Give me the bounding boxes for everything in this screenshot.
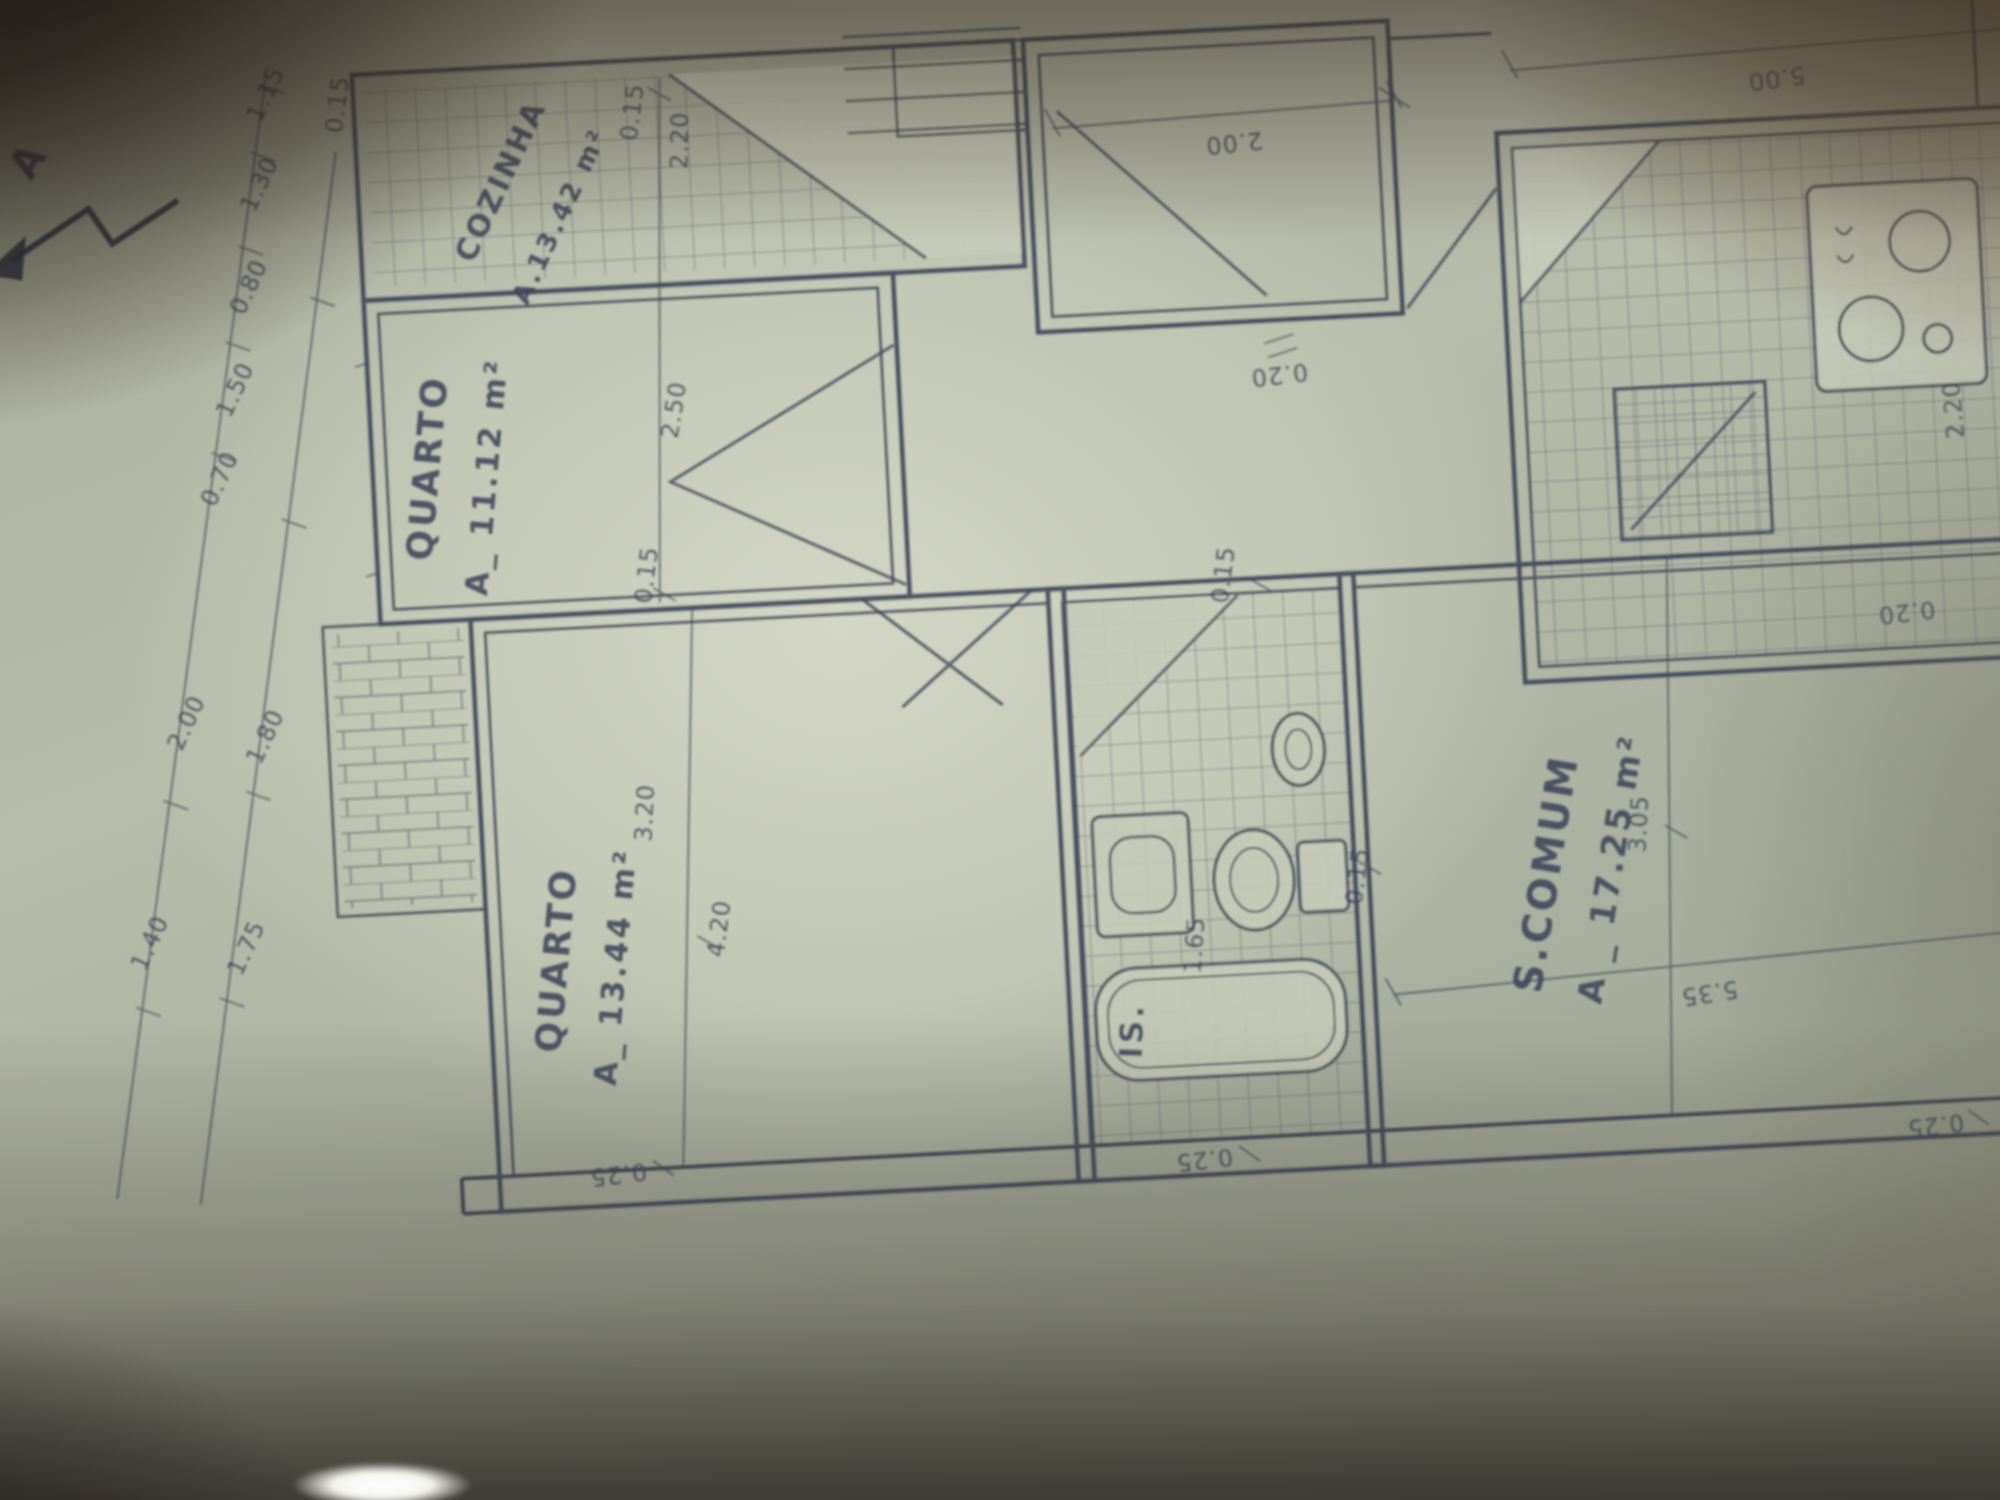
chain-b-175: 1.75 (221, 916, 271, 980)
sink-bowl (1109, 835, 1177, 914)
room-label-scomum: S.COMUM (1504, 751, 1587, 996)
dim-bottomwall-mid: 0.25 (1174, 1142, 1234, 1177)
dim-scomum-length: 5.35 (1679, 975, 1740, 1012)
dim-quarto1-width: 2.50 (656, 379, 693, 440)
dim-kitchen1: 2.20 (665, 111, 694, 169)
plan-rotated-group: A COZINHA A.13.42 m² QUARTO A_ 11.12 m² … (0, 0, 2000, 1241)
dim-quarto2-width: 3.20 (629, 783, 660, 842)
chain-a-130: 1.30 (234, 152, 284, 216)
room-label-quarto2: QUARTO (527, 865, 584, 1054)
room-label-quarto1: QUARTO (399, 373, 456, 562)
dim-scomum-width: 3.05 (1623, 794, 1654, 853)
stove (1807, 178, 1987, 392)
section-marker-label: A (0, 133, 57, 186)
room-area-quarto2: A_ 13.44 m² (587, 847, 644, 1087)
room-area-quarto1: A_ 11.12 m² (458, 357, 515, 597)
dim-kitchen2-width: 2.20 (1937, 380, 1970, 440)
dim-wall-topleft: 0.15 (320, 74, 355, 134)
dim-quarto2-length: 4.20 (702, 898, 737, 958)
light-reflection (292, 1462, 472, 1500)
section-arrowhead (0, 236, 28, 282)
chain-a-200: 2.00 (162, 691, 212, 755)
room-label-is: IS. (1112, 1002, 1152, 1059)
blueprint-photo: A COZINHA A.13.42 m² QUARTO A_ 11.12 m² … (0, 0, 2000, 1500)
floorplan-svg: A COZINHA A.13.42 m² QUARTO A_ 11.12 m² … (0, 0, 2000, 1500)
dim-bathtub: 1.65 (1179, 915, 1211, 974)
dim-bottomwall-right: 0.25 (1905, 1108, 1965, 1143)
chain-a-080: 0.80 (224, 255, 274, 319)
dim-bottomwall-left: 0.25 (588, 1157, 648, 1192)
chain-a-150: 1.50 (210, 358, 260, 422)
dim-wall-hall: 0.20 (1249, 357, 1309, 392)
chain-b-180: 1.80 (240, 705, 290, 769)
chain-a-140: 1.40 (125, 911, 175, 975)
chain-a-070: 0.70 (195, 447, 245, 511)
dim-top-entry: 2.00 (1204, 126, 1264, 160)
balcony-brick-hatch (331, 628, 477, 909)
dim-top-right: 5.00 (1746, 61, 1807, 97)
section-marker: A (0, 125, 182, 282)
